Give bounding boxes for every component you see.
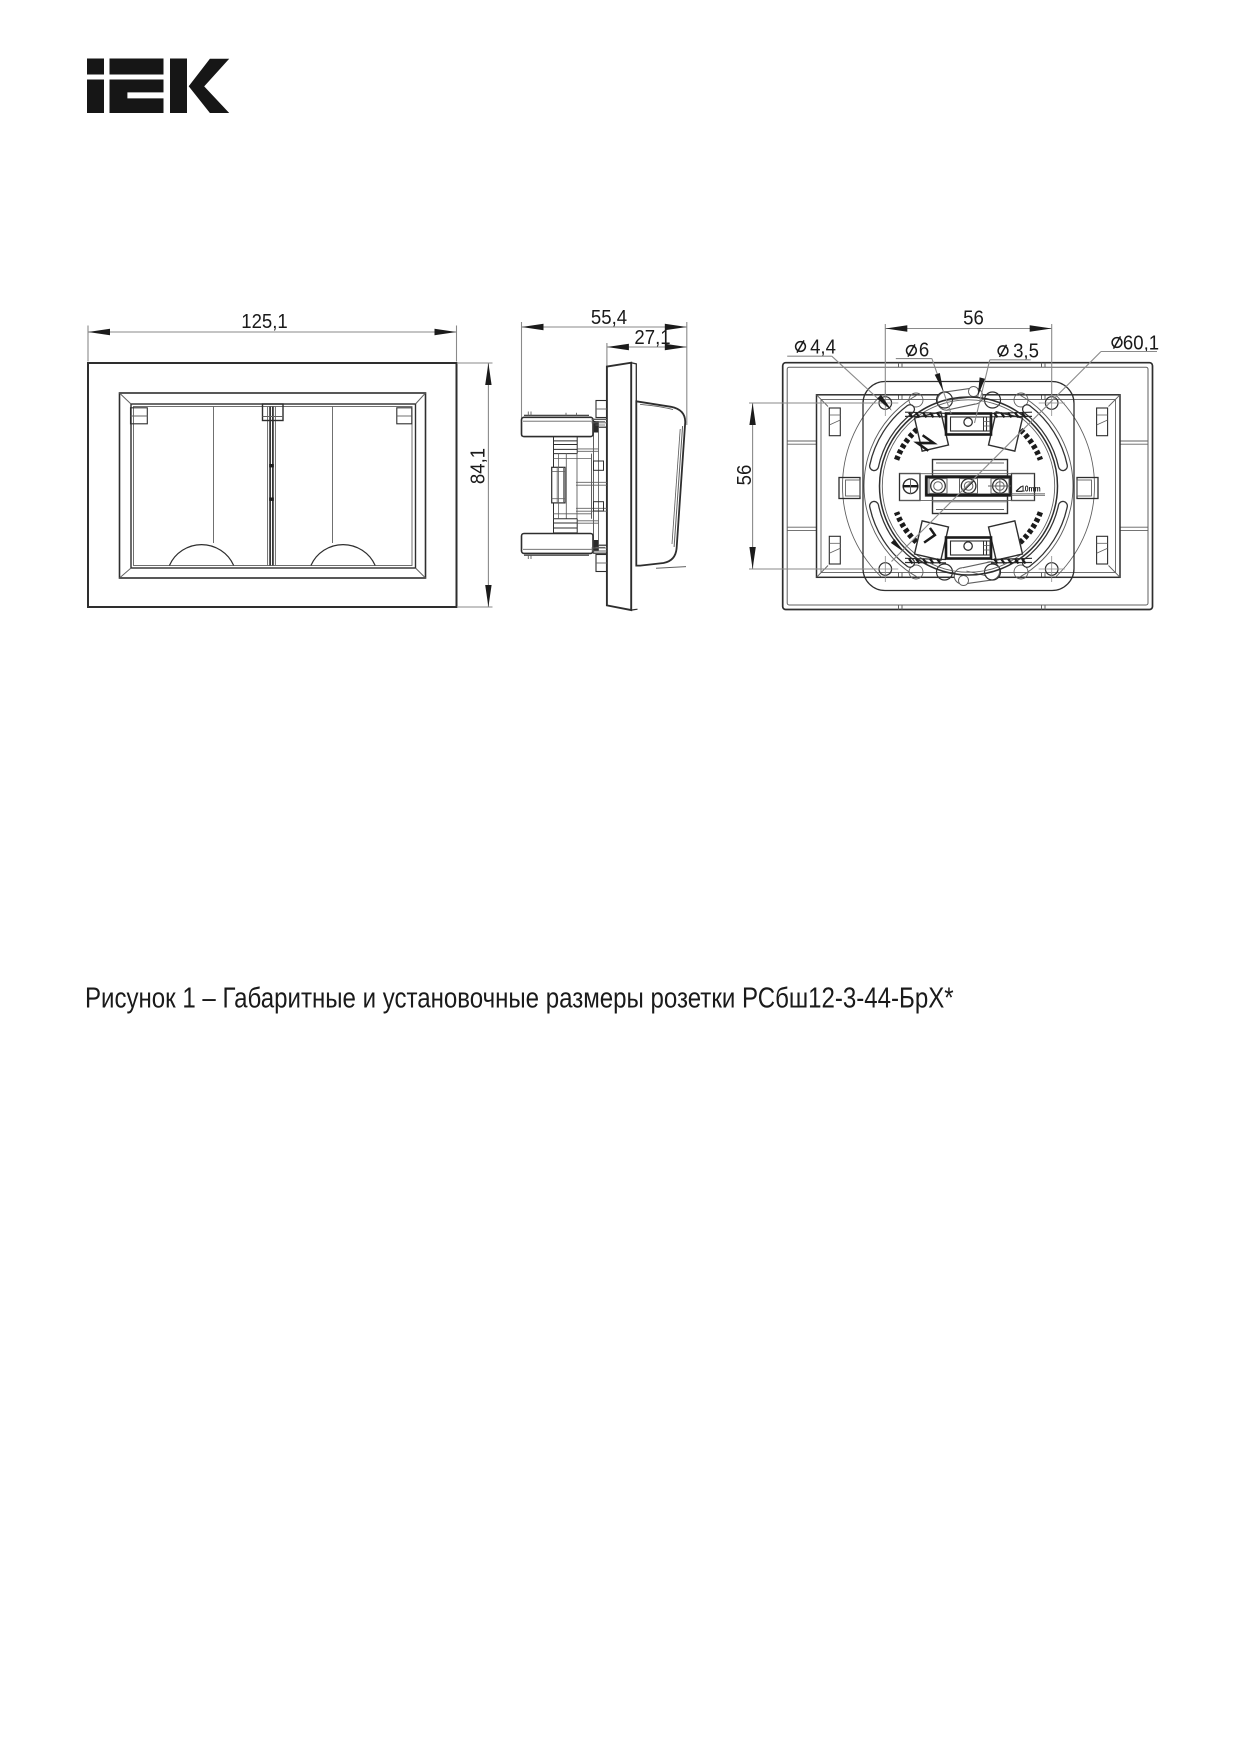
svg-text:56: 56 xyxy=(734,465,756,486)
svg-text:84,1: 84,1 xyxy=(468,448,490,484)
svg-text:10mm: 10mm xyxy=(1021,484,1041,494)
svg-text:4,4: 4,4 xyxy=(810,337,836,359)
svg-text:Рисунок 1 – Габаритные и устан: Рисунок 1 – Габаритные и установочные ра… xyxy=(85,981,954,1014)
svg-text:56: 56 xyxy=(963,308,984,330)
svg-text:27,1: 27,1 xyxy=(634,327,670,349)
svg-text:125,1: 125,1 xyxy=(241,311,288,333)
svg-text:55,4: 55,4 xyxy=(591,307,627,329)
